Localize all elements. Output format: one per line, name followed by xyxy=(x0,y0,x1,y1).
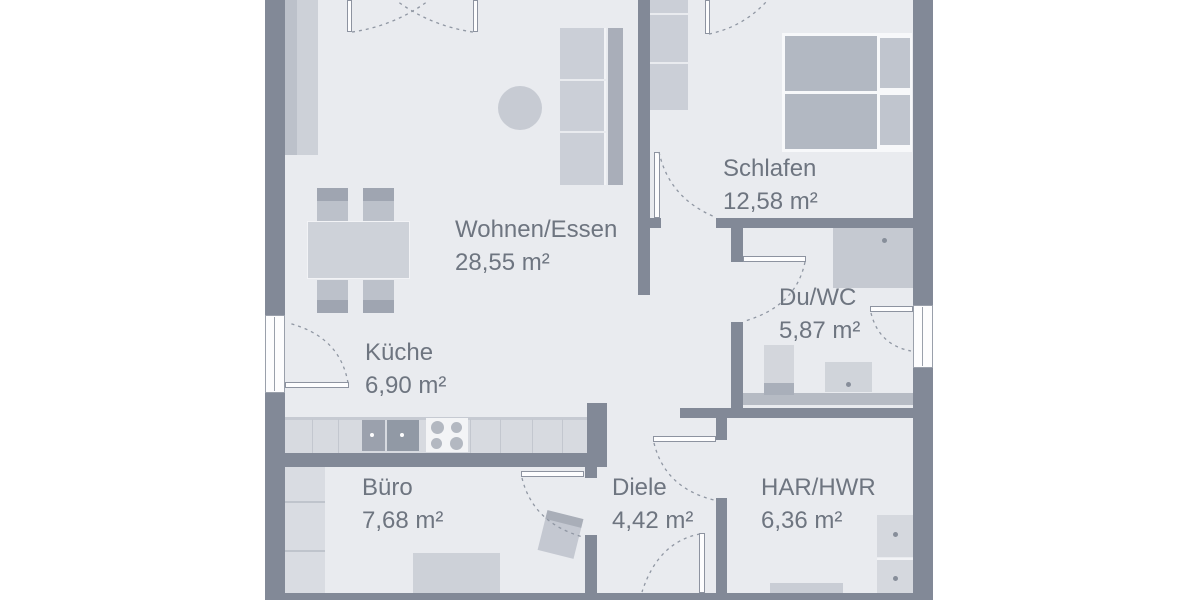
chair-back xyxy=(363,188,394,201)
room-label-har-hwr: HAR/HWR 6,36 m² xyxy=(761,471,876,537)
sofa-cushion-line xyxy=(560,131,606,133)
counter-divider xyxy=(562,419,563,453)
wall-schlafen-south xyxy=(716,218,933,228)
stove-burner xyxy=(450,437,463,450)
room-label-buero: Büro 7,68 m² xyxy=(362,471,443,537)
counter-divider xyxy=(312,419,313,453)
duwc-window xyxy=(913,305,933,368)
entrance-door-leaf xyxy=(699,533,705,593)
room-area: 12,58 m² xyxy=(723,185,818,218)
room-label-kueche: Küche 6,90 m² xyxy=(365,336,446,402)
schlafen-door-leaf xyxy=(654,152,660,218)
wall-kueche-east xyxy=(587,403,607,453)
room-name: Diele xyxy=(612,471,693,504)
counter-divider xyxy=(338,419,339,453)
chair-seat xyxy=(317,201,348,221)
washer-dot xyxy=(893,532,898,537)
shelf-divider xyxy=(285,550,325,552)
room-area: 6,36 m² xyxy=(761,504,876,537)
duwc-door-leaf xyxy=(743,256,806,262)
room-name: Wohnen/Essen xyxy=(455,213,617,246)
terrace-door-leaf xyxy=(347,0,352,32)
sideboard-edge xyxy=(285,0,297,155)
dryer-dot xyxy=(893,576,898,581)
sofa-cushion-line xyxy=(560,79,606,81)
stove-burner xyxy=(431,438,442,449)
chair-back xyxy=(317,188,348,201)
room-area: 4,42 m² xyxy=(612,504,693,537)
dining-table xyxy=(307,221,410,279)
shelf-divider xyxy=(285,501,325,503)
wardrobe-divider xyxy=(648,62,688,64)
room-name: HAR/HWR xyxy=(761,471,876,504)
room-label-diele: Diele 4,42 m² xyxy=(612,471,693,537)
exterior-wall-left xyxy=(265,393,285,593)
bed-mattress xyxy=(785,94,877,149)
wardrobe xyxy=(648,0,688,110)
wall-diele-har-stub xyxy=(716,418,727,440)
utility-cabinet xyxy=(770,583,843,593)
kueche-window-frame xyxy=(274,317,275,391)
exterior-wall-right xyxy=(913,368,933,593)
room-area: 7,68 m² xyxy=(362,504,443,537)
dishwasher-dot xyxy=(400,433,404,437)
bed-mattress xyxy=(785,36,877,91)
kueche-window-casement xyxy=(285,382,349,388)
kueche-window xyxy=(265,315,285,393)
terrace-door-leaf xyxy=(473,0,478,32)
chair-back xyxy=(363,300,394,313)
wall-schlafen-south xyxy=(638,218,661,228)
counter-divider xyxy=(532,419,533,453)
office-shelf xyxy=(285,467,325,593)
bed-pillow xyxy=(880,38,910,88)
room-name: Schlafen xyxy=(723,152,818,185)
room-name: Büro xyxy=(362,471,443,504)
duwc-window-frame xyxy=(922,307,923,366)
wardrobe-divider xyxy=(648,13,688,15)
shower-drain xyxy=(882,238,887,243)
chair-back xyxy=(317,300,348,313)
desk xyxy=(413,553,500,593)
toilet-bowl xyxy=(764,345,794,383)
har-door-leaf xyxy=(653,436,716,442)
floor-plan: Wohnen/Essen 28,55 m² Schlafen 12,58 m² … xyxy=(0,0,1200,600)
chair-seat xyxy=(317,280,348,300)
washbasin-drain xyxy=(846,382,851,387)
sink-dot xyxy=(370,433,374,437)
room-label-wohnen-essen: Wohnen/Essen 28,55 m² xyxy=(455,213,617,279)
counter-divider xyxy=(470,419,471,453)
schlafen-terrace-door-leaf xyxy=(705,0,710,34)
room-label-du-wc: Du/WC 5,87 m² xyxy=(779,281,860,347)
chair-seat xyxy=(363,280,394,300)
wall-duwc-south xyxy=(680,408,913,418)
room-label-schlafen: Schlafen 12,58 m² xyxy=(723,152,818,218)
toilet-tank xyxy=(764,383,794,395)
exterior-wall-left xyxy=(265,0,285,315)
wall-kueche-south xyxy=(280,453,607,467)
exterior-wall-right xyxy=(913,0,933,305)
room-area: 28,55 m² xyxy=(455,246,617,279)
buero-door-leaf xyxy=(521,471,584,477)
counter-divider xyxy=(500,419,501,453)
wall-diele-har xyxy=(716,498,727,593)
room-area: 5,87 m² xyxy=(779,314,860,347)
shower xyxy=(833,228,913,288)
exterior-wall-bottom xyxy=(265,593,933,600)
washbasin xyxy=(825,362,872,392)
bed-pillow xyxy=(880,95,910,145)
wall-wohnen-schlafen xyxy=(638,0,650,295)
room-name: Küche xyxy=(365,336,446,369)
stove-burner xyxy=(431,421,444,434)
sofa-back xyxy=(608,28,623,185)
stove-burner xyxy=(451,422,462,433)
wall-duwc-west xyxy=(731,228,743,262)
sofa-seat xyxy=(560,28,606,185)
room-name: Du/WC xyxy=(779,281,860,314)
chair-seat xyxy=(363,201,394,221)
duwc-window-casement xyxy=(870,306,913,312)
room-area: 6,90 m² xyxy=(365,369,446,402)
coffee-table xyxy=(498,86,542,130)
wall-duwc-west xyxy=(731,322,743,408)
wall-buero-east xyxy=(585,535,597,593)
wall-buero-east-stub xyxy=(585,467,597,478)
